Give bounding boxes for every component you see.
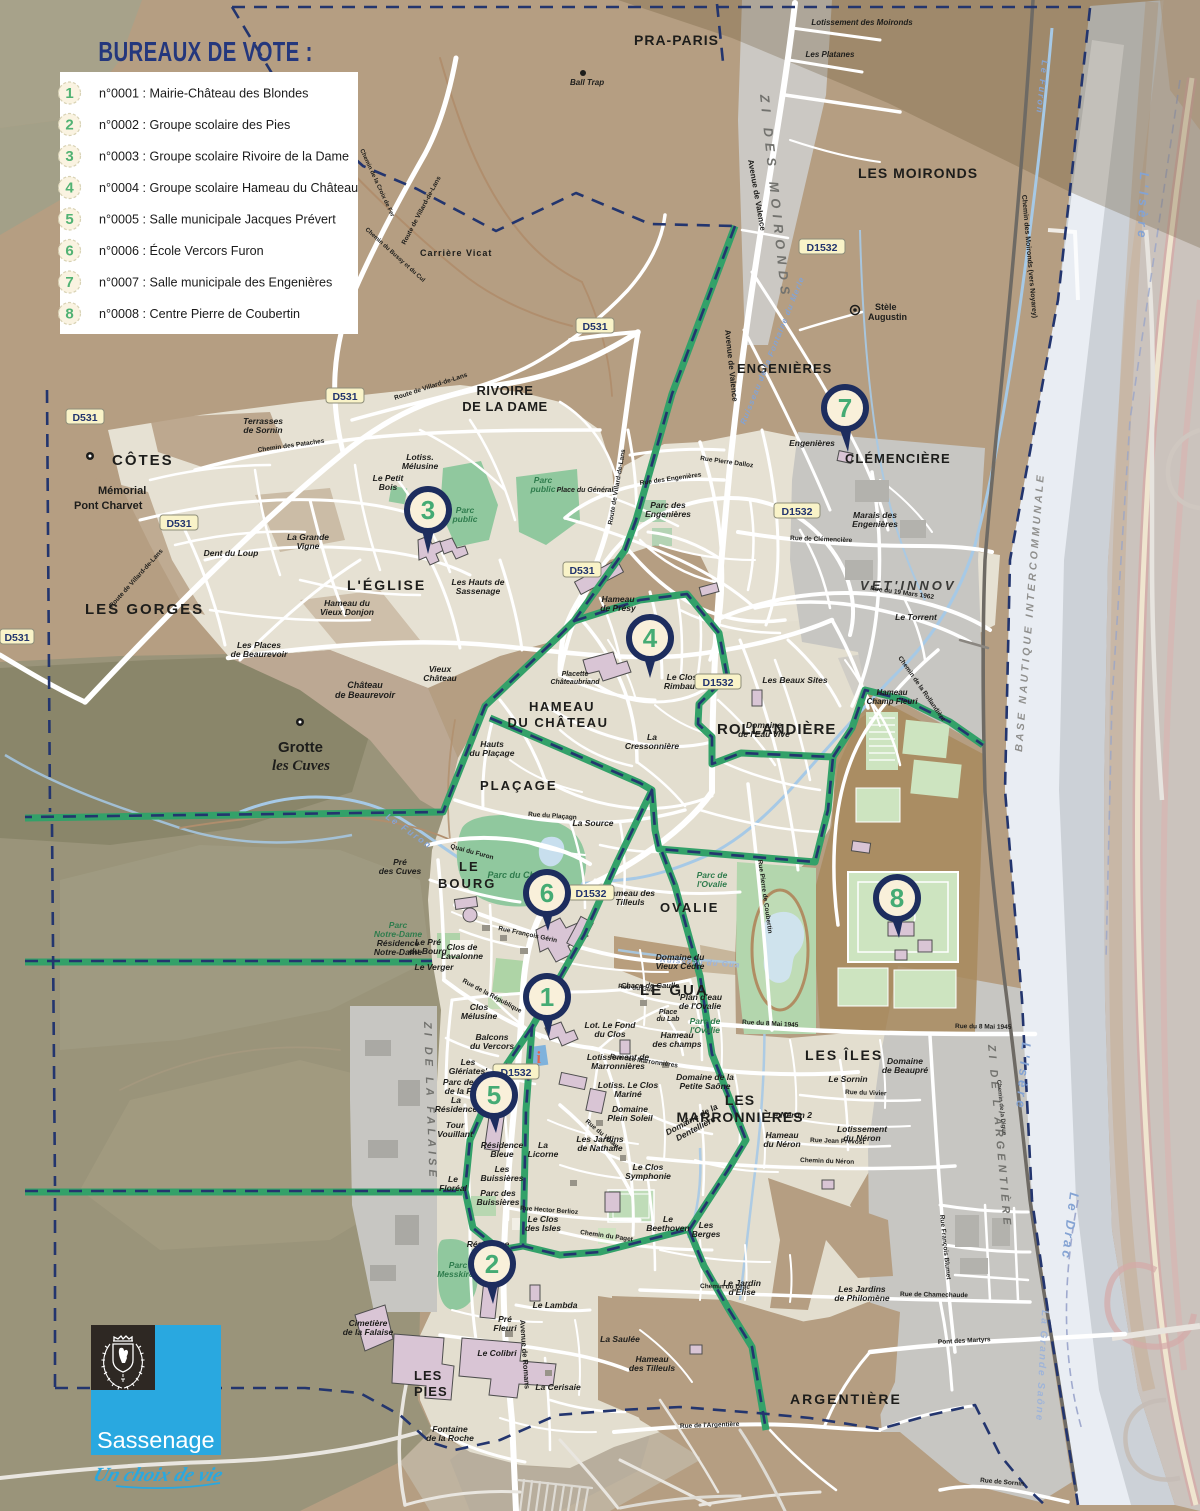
svg-text:3: 3: [65, 148, 73, 165]
svg-text:du Plaçage: du Plaçage: [470, 748, 515, 758]
svg-text:Hameau: Hameau: [876, 688, 907, 697]
svg-text:L'Isère: L'Isère: [1135, 172, 1152, 242]
svg-text:de Philomène: de Philomène: [834, 1293, 890, 1303]
svg-text:Buissières: Buissières: [477, 1197, 520, 1207]
svg-text:Vouillant: Vouillant: [437, 1129, 474, 1139]
svg-text:des champs: des champs: [652, 1039, 701, 1049]
svg-text:8: 8: [890, 883, 904, 913]
svg-text:Engenières: Engenières: [645, 509, 691, 519]
svg-text:Place: Place: [659, 1009, 677, 1016]
svg-text:OVALIE: OVALIE: [660, 900, 719, 915]
svg-text:Chemin du Drac: Chemin du Drac: [700, 1283, 750, 1291]
svg-text:D531: D531: [4, 632, 29, 644]
svg-text:de Sornin: de Sornin: [243, 425, 282, 435]
svg-text:Vieux Cédre: Vieux Cédre: [656, 961, 705, 971]
svg-text:de Beaurevoir: de Beaurevoir: [231, 649, 288, 659]
svg-text:Le Sornin: Le Sornin: [828, 1074, 867, 1084]
svg-text:Mémorial: Mémorial: [98, 485, 146, 497]
svg-text:1: 1: [65, 85, 73, 102]
svg-text:6: 6: [65, 243, 73, 260]
svg-text:Fleuri: Fleuri: [493, 1323, 517, 1333]
svg-text:1: 1: [540, 982, 554, 1012]
svg-text:Vieux Donjon: Vieux Donjon: [320, 607, 374, 617]
svg-text:LE: LE: [459, 859, 480, 874]
svg-text:Licorne: Licorne: [528, 1149, 559, 1159]
svg-text:n°0001 : Mairie-Château des Bl: n°0001 : Mairie-Château des Blondes: [99, 87, 308, 101]
svg-text:PLAÇAGE: PLAÇAGE: [480, 778, 558, 793]
svg-text:l'Ovalie: l'Ovalie: [697, 879, 727, 889]
svg-text:Place du Général: Place du Général: [557, 487, 615, 494]
svg-text:des Isles: des Isles: [525, 1223, 561, 1233]
svg-text:Lotissement des Moironds: Lotissement des Moironds: [811, 18, 913, 27]
svg-text:Lavalonne: Lavalonne: [441, 951, 483, 961]
svg-text:Sassenage: Sassenage: [97, 1427, 215, 1453]
svg-text:Tilleuls: Tilleuls: [615, 897, 644, 907]
svg-text:Rue du Vivier: Rue du Vivier: [845, 1089, 887, 1097]
svg-text:n°0002 : Groupe scolaire des P: n°0002 : Groupe scolaire des Pies: [99, 118, 290, 132]
svg-text:L'ÉGLISE: L'ÉGLISE: [347, 577, 426, 593]
svg-text:Ball Trap: Ball Trap: [570, 78, 604, 87]
svg-text:La Saulée: La Saulée: [600, 1334, 640, 1344]
svg-text:Grotte: Grotte: [278, 739, 323, 756]
svg-text:l'Ovalie: l'Ovalie: [690, 1025, 720, 1035]
svg-text:Bleue: Bleue: [490, 1149, 513, 1159]
svg-text:Carrière Vicat: Carrière Vicat: [420, 248, 492, 258]
svg-text:3: 3: [421, 495, 435, 525]
svg-text:Cressonnière: Cressonnière: [625, 741, 680, 751]
svg-text:de Beaurevoir: de Beaurevoir: [335, 690, 396, 700]
svg-text:D531: D531: [569, 565, 594, 577]
svg-text:Le Torrent: Le Torrent: [895, 612, 938, 622]
svg-text:du Bourg: du Bourg: [409, 946, 448, 956]
svg-text:LES: LES: [414, 1368, 442, 1383]
svg-text:2: 2: [65, 117, 73, 134]
svg-text:du Néron: du Néron: [763, 1139, 800, 1149]
svg-text:Château: Château: [423, 673, 457, 683]
svg-text:Rue du 8 Mai 1945: Rue du 8 Mai 1945: [955, 1023, 1012, 1031]
svg-text:6: 6: [540, 878, 554, 908]
svg-text:Pont Charvet: Pont Charvet: [74, 500, 143, 512]
svg-text:Châteaubriand: Châteaubriand: [550, 679, 600, 686]
svg-text:n°0006 : École Vercors Furon: n°0006 : École Vercors Furon: [99, 243, 264, 258]
svg-text:Petite Saône: Petite Saône: [679, 1081, 730, 1091]
svg-text:du Vercors: du Vercors: [470, 1041, 514, 1051]
svg-text:4: 4: [65, 180, 74, 197]
svg-text:les Cuves: les Cuves: [272, 758, 330, 774]
svg-text:Sassenage: Sassenage: [456, 586, 501, 596]
svg-text:D531: D531: [166, 518, 191, 530]
svg-text:Engenières: Engenières: [852, 519, 898, 529]
svg-text:n°0003 : Groupe scolaire Rivoi: n°0003 : Groupe scolaire Rivoire de la D…: [99, 150, 349, 164]
svg-text:PRA-PARIS: PRA-PARIS: [634, 32, 719, 48]
svg-text:Château: Château: [347, 680, 383, 690]
svg-text:public: public: [451, 514, 477, 524]
svg-text:Le Colibri: Le Colibri: [477, 1348, 517, 1358]
svg-text:Placette: Placette: [562, 671, 589, 678]
svg-text:Un choix de vie: Un choix de vie: [90, 1464, 225, 1485]
svg-text:ARGENTIÈRE: ARGENTIÈRE: [790, 1391, 902, 1407]
svg-text:Mélusine: Mélusine: [402, 461, 439, 471]
svg-text:Buissières: Buissières: [481, 1173, 524, 1183]
svg-text:8: 8: [65, 306, 73, 323]
svg-text:Les Platanes: Les Platanes: [806, 50, 855, 59]
svg-text:Le Néron 2: Le Néron 2: [768, 1110, 812, 1120]
svg-text:n°0007 : Salle municipale des: n°0007 : Salle municipale des Engenières: [99, 276, 332, 290]
svg-text:Symphonie: Symphonie: [625, 1171, 671, 1181]
svg-text:Bois: Bois: [379, 482, 398, 492]
svg-text:D1532: D1532: [576, 888, 607, 900]
svg-text:LES ÎLES: LES ÎLES: [805, 1046, 883, 1063]
svg-text:Floréal: Floréal: [439, 1183, 468, 1193]
svg-text:Beethoven: Beethoven: [646, 1223, 689, 1233]
svg-text:de la Falaise: de la Falaise: [343, 1327, 394, 1337]
svg-text:de Présy: de Présy: [600, 603, 637, 613]
svg-text:Plein Soleil: Plein Soleil: [607, 1113, 653, 1123]
svg-text:LES: LES: [725, 1092, 755, 1108]
svg-text:CLÉMENCIÈRE: CLÉMENCIÈRE: [845, 451, 951, 466]
svg-text:du Lab: du Lab: [657, 1016, 681, 1023]
svg-text:de la Roche: de la Roche: [426, 1433, 474, 1443]
svg-text:La Source: La Source: [572, 818, 613, 828]
svg-text:HAMEAU: HAMEAU: [529, 699, 595, 714]
svg-text:Les Beaux Sites: Les Beaux Sites: [762, 675, 827, 685]
svg-text:5: 5: [65, 211, 73, 228]
svg-text:D531: D531: [582, 321, 607, 333]
svg-text:n°0008 : Centre Pierre de Coub: n°0008 : Centre Pierre de Coubertin: [99, 307, 300, 321]
svg-text:ENGENIÈRES: ENGENIÈRES: [737, 361, 832, 376]
svg-text:des Tilleuls: des Tilleuls: [629, 1363, 675, 1373]
svg-text:BUREAUX DE VOTE :: BUREAUX DE VOTE :: [98, 37, 312, 68]
svg-text:4: 4: [643, 623, 658, 653]
svg-text:7: 7: [65, 274, 73, 291]
svg-text:Mélusine: Mélusine: [461, 1011, 498, 1021]
svg-text:2: 2: [485, 1249, 499, 1279]
svg-text:Mariné: Mariné: [614, 1089, 642, 1099]
svg-text:Dent du Loup: Dent du Loup: [204, 548, 259, 558]
svg-text:D1532: D1532: [807, 242, 838, 254]
svg-text:de Beaupré: de Beaupré: [882, 1065, 929, 1075]
svg-text:Berges: Berges: [692, 1229, 721, 1239]
svg-text:PIES: PIES: [414, 1384, 448, 1399]
svg-text:du Clos: du Clos: [594, 1029, 625, 1039]
svg-text:de l'Eau Vive: de l'Eau Vive: [738, 729, 790, 739]
svg-text:n°0004 : Groupe scolaire Hamea: n°0004 : Groupe scolaire Hameau du Châte…: [99, 181, 358, 195]
svg-text:CÔTES: CÔTES: [112, 451, 174, 469]
svg-text:DE LA DAME: DE LA DAME: [462, 399, 547, 414]
svg-text:Rue de Chamechaude: Rue de Chamechaude: [900, 1291, 968, 1299]
svg-text:Augustin: Augustin: [868, 312, 907, 322]
svg-text:Le Lambda: Le Lambda: [533, 1300, 578, 1310]
svg-text:des Cuves: des Cuves: [379, 866, 422, 876]
svg-text:Le Verger: Le Verger: [415, 962, 455, 972]
svg-text:D531: D531: [72, 412, 97, 424]
svg-text:RIVOIRE: RIVOIRE: [477, 383, 534, 398]
svg-text:LES MOIRONDS: LES MOIRONDS: [858, 165, 978, 181]
svg-text:Résidence: Résidence: [435, 1104, 478, 1114]
svg-text:D1532: D1532: [703, 677, 734, 689]
svg-text:7: 7: [838, 393, 852, 423]
svg-text:de l'Ovalie: de l'Ovalie: [679, 1001, 721, 1011]
svg-text:D531: D531: [332, 391, 357, 403]
svg-text:5: 5: [487, 1080, 501, 1110]
svg-text:La Cerisaie: La Cerisaie: [535, 1382, 581, 1392]
svg-text:Champ Fleuri: Champ Fleuri: [866, 697, 918, 706]
svg-text:Engenières: Engenières: [789, 438, 835, 448]
svg-text:Stèle: Stèle: [875, 302, 897, 312]
svg-text:Vigne: Vigne: [297, 541, 320, 551]
svg-text:DU CHÂTEAU: DU CHÂTEAU: [508, 715, 609, 730]
svg-text:D1532: D1532: [782, 506, 813, 518]
svg-text:LES GORGES: LES GORGES: [85, 601, 204, 618]
svg-text:public: public: [529, 484, 555, 494]
svg-text:n°0005 : Salle municipale Jacq: n°0005 : Salle municipale Jacques Préver…: [99, 213, 336, 227]
